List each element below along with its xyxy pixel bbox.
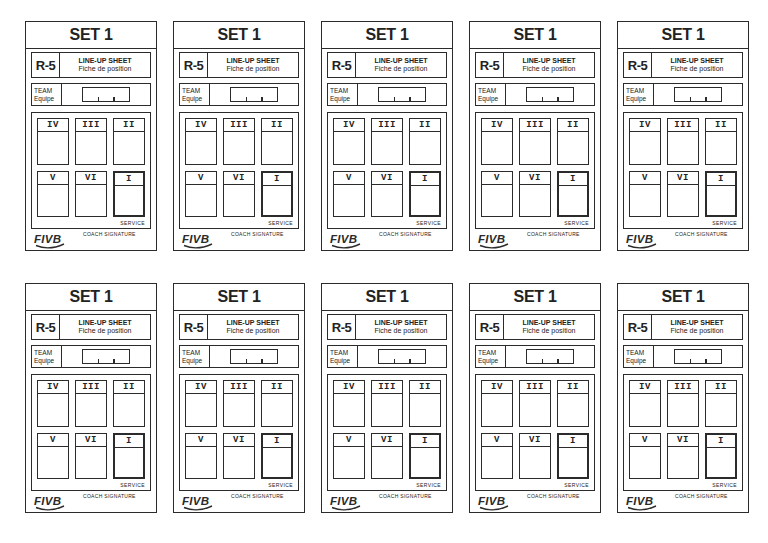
position-label-v: V: [630, 172, 660, 185]
position-label-ii: II: [706, 119, 736, 132]
cards-row-top: SET 1 R-5 LINE-UP SHEET Fiche de positio…: [25, 21, 749, 251]
card-footer: COACH SIGNATURE FIVB: [31, 229, 151, 250]
team-label-en: TEAM: [330, 87, 357, 95]
position-label-iii: III: [76, 119, 106, 132]
position-label-i: I: [559, 435, 587, 448]
fivb-logo-graphic: FIVB: [33, 232, 71, 251]
set-title: SET 1: [470, 284, 600, 311]
cards-row-bottom: SET 1 R-5 LINE-UP SHEET Fiche de positio…: [25, 283, 749, 513]
sheet-title-en: LINE-UP SHEET: [226, 319, 279, 327]
team-label-fr: Equipe: [626, 95, 653, 103]
position-label-iv: IV: [38, 381, 68, 394]
position-box-v: V: [185, 433, 217, 480]
position-box-ii: II: [557, 118, 589, 165]
position-box-iii: III: [223, 380, 255, 427]
lineup-sheet-card: SET 1 R-5 LINE-UP SHEET Fiche de positio…: [321, 21, 453, 251]
team-name-field: [230, 87, 278, 102]
team-row: TEAM Equipe: [327, 345, 447, 368]
position-label-iv: IV: [630, 119, 660, 132]
sheet-title-fr: Fiche de position: [671, 65, 724, 73]
position-field-iii: [76, 132, 106, 164]
position-field-iii: [668, 132, 698, 164]
lineup-sheet-card: SET 1 R-5 LINE-UP SHEET Fiche de positio…: [173, 283, 305, 513]
team-field-cell: [506, 84, 594, 105]
coach-signature-label: COACH SIGNATURE: [83, 231, 136, 237]
fivb-logo: FIVB: [625, 232, 663, 255]
sheet-title-en: LINE-UP SHEET: [374, 57, 427, 65]
team-field-cell: [210, 84, 298, 105]
card-footer: COACH SIGNATURE FIVB: [179, 491, 299, 512]
team-field-tick: [246, 97, 247, 101]
team-label-en: TEAM: [182, 87, 209, 95]
team-label-en: TEAM: [182, 349, 209, 357]
team-label-en: TEAM: [34, 87, 61, 95]
position-box-iv: IV: [481, 118, 513, 165]
service-label: SERVICE: [416, 220, 441, 226]
team-label-fr: Equipe: [330, 95, 357, 103]
sheet-title-fr: Fiche de position: [375, 65, 428, 73]
team-label-fr: Equipe: [34, 357, 61, 365]
position-field-v: [186, 185, 216, 217]
service-label: SERVICE: [120, 220, 145, 226]
team-field-cell: [62, 346, 150, 367]
position-field-v: [38, 185, 68, 217]
position-label-iv: IV: [482, 381, 512, 394]
position-box-v: V: [185, 171, 217, 218]
position-box-iii: III: [223, 118, 255, 165]
team-field-cell: [506, 346, 594, 367]
team-label-fr: Equipe: [478, 95, 505, 103]
position-label-iii: III: [668, 381, 698, 394]
form-code: R-5: [624, 315, 652, 339]
sheet-title: LINE-UP SHEET Fiche de position: [652, 315, 742, 339]
card-footer: COACH SIGNATURE FIVB: [327, 491, 447, 512]
team-label: TEAM Equipe: [32, 346, 62, 367]
position-label-iii: III: [224, 119, 254, 132]
position-label-vi: VI: [224, 434, 254, 447]
team-field-tick: [557, 97, 558, 101]
form-code: R-5: [180, 315, 208, 339]
position-box-iv: IV: [37, 118, 69, 165]
team-label-fr: Equipe: [330, 357, 357, 365]
team-label-en: TEAM: [34, 349, 61, 357]
position-grid: IV III II V VI: [31, 374, 151, 491]
position-label-v: V: [38, 434, 68, 447]
position-field-iv: [334, 132, 364, 164]
position-label-ii: II: [114, 119, 144, 132]
position-box-iv: IV: [185, 380, 217, 427]
position-label-i: I: [411, 173, 439, 186]
position-label-v: V: [186, 434, 216, 447]
team-name-field: [82, 87, 130, 102]
position-field-v: [482, 185, 512, 217]
position-label-vi: VI: [224, 172, 254, 185]
position-field-vi: [520, 185, 550, 217]
team-label-fr: Equipe: [182, 357, 209, 365]
position-grid: IV III II V VI: [31, 112, 151, 229]
position-grid: IV III II V VI: [179, 112, 299, 229]
position-box-vi: VI: [667, 433, 699, 480]
card-footer: COACH SIGNATURE FIVB: [31, 491, 151, 512]
team-row: TEAM Equipe: [31, 83, 151, 106]
position-field-vi: [372, 185, 402, 217]
position-field-i: [263, 448, 291, 478]
team-row: TEAM Equipe: [31, 345, 151, 368]
position-field-iv: [186, 394, 216, 426]
position-box-ii: II: [409, 118, 441, 165]
position-box-vi: VI: [75, 171, 107, 218]
form-header-row: R-5 LINE-UP SHEET Fiche de position: [179, 314, 299, 340]
team-name-field: [378, 87, 426, 102]
position-label-ii: II: [262, 381, 292, 394]
fivb-logo-text: FIVB: [182, 233, 209, 245]
position-field-ii: [558, 132, 588, 164]
fivb-logo-graphic: FIVB: [477, 494, 515, 513]
lineup-sheet-card: SET 1 R-5 LINE-UP SHEET Fiche de positio…: [321, 283, 453, 513]
sheet-title: LINE-UP SHEET Fiche de position: [356, 53, 446, 77]
service-label: SERVICE: [120, 482, 145, 488]
team-field-tick: [394, 359, 395, 363]
position-label-iv: IV: [186, 381, 216, 394]
team-label-en: TEAM: [478, 349, 505, 357]
position-box-iii: III: [371, 380, 403, 427]
position-grid: IV III II V VI: [623, 374, 743, 491]
card-footer: COACH SIGNATURE FIVB: [475, 229, 595, 250]
position-box-i-service: I: [705, 433, 737, 480]
position-box-iv: IV: [629, 380, 661, 427]
sheet-title-fr: Fiche de position: [79, 327, 132, 335]
position-box-i-service: I: [705, 171, 737, 218]
coach-signature-label: COACH SIGNATURE: [379, 493, 432, 499]
team-field-cell: [62, 84, 150, 105]
sheet-title-fr: Fiche de position: [79, 65, 132, 73]
team-name-field: [230, 349, 278, 364]
fivb-logo: FIVB: [329, 232, 367, 255]
position-label-vi: VI: [668, 172, 698, 185]
position-label-vi: VI: [76, 434, 106, 447]
team-label-en: TEAM: [626, 349, 653, 357]
coach-signature-label: COACH SIGNATURE: [675, 231, 728, 237]
position-label-v: V: [630, 434, 660, 447]
position-field-i: [115, 448, 143, 478]
team-name-field: [674, 87, 722, 102]
position-field-ii: [410, 132, 440, 164]
position-label-ii: II: [114, 381, 144, 394]
team-label-en: TEAM: [626, 87, 653, 95]
position-box-iii: III: [75, 118, 107, 165]
team-field-tick: [98, 359, 99, 363]
position-box-ii: II: [261, 380, 293, 427]
position-label-vi: VI: [668, 434, 698, 447]
fivb-logo-text: FIVB: [478, 495, 505, 507]
position-box-i-service: I: [261, 171, 293, 218]
position-grid: IV III II V VI: [623, 112, 743, 229]
position-field-ii: [262, 394, 292, 426]
sheet-title: LINE-UP SHEET Fiche de position: [356, 315, 446, 339]
position-grid: IV III II V VI: [327, 112, 447, 229]
card-body: R-5 LINE-UP SHEET Fiche de position TEAM…: [470, 49, 600, 250]
position-field-i: [411, 186, 439, 216]
lineup-sheet-card: SET 1 R-5 LINE-UP SHEET Fiche de positio…: [25, 21, 157, 251]
set-title: SET 1: [174, 22, 304, 49]
fivb-logo-graphic: FIVB: [181, 494, 219, 513]
position-field-vi: [224, 447, 254, 479]
position-box-vi: VI: [223, 171, 255, 218]
position-label-ii: II: [558, 119, 588, 132]
position-label-i: I: [559, 173, 587, 186]
position-box-v: V: [481, 433, 513, 480]
position-field-i: [707, 186, 735, 216]
position-field-iii: [520, 132, 550, 164]
team-field-tick: [113, 359, 114, 363]
sheet-title-fr: Fiche de position: [523, 65, 576, 73]
team-field-tick: [690, 359, 691, 363]
position-label-vi: VI: [372, 172, 402, 185]
position-box-vi: VI: [75, 433, 107, 480]
position-field-ii: [558, 394, 588, 426]
fivb-logo: FIVB: [477, 232, 515, 255]
card-footer: COACH SIGNATURE FIVB: [475, 491, 595, 512]
form-code: R-5: [476, 53, 504, 77]
team-row: TEAM Equipe: [179, 83, 299, 106]
card-footer: COACH SIGNATURE FIVB: [623, 491, 743, 512]
fivb-logo-text: FIVB: [330, 233, 357, 245]
position-field-v: [334, 185, 364, 217]
position-field-iii: [372, 394, 402, 426]
position-box-iii: III: [519, 118, 551, 165]
fivb-logo-graphic: FIVB: [329, 232, 367, 251]
form-header-row: R-5 LINE-UP SHEET Fiche de position: [31, 314, 151, 340]
service-label: SERVICE: [712, 482, 737, 488]
position-field-v: [630, 185, 660, 217]
lineup-sheet-card: SET 1 R-5 LINE-UP SHEET Fiche de positio…: [469, 21, 601, 251]
position-box-v: V: [37, 433, 69, 480]
position-label-iii: III: [372, 381, 402, 394]
card-body: R-5 LINE-UP SHEET Fiche de position TEAM…: [322, 49, 452, 250]
position-label-i: I: [115, 173, 143, 186]
position-label-iv: IV: [334, 119, 364, 132]
team-label-en: TEAM: [478, 87, 505, 95]
position-label-v: V: [334, 172, 364, 185]
position-label-i: I: [707, 435, 735, 448]
position-label-iv: IV: [38, 119, 68, 132]
position-box-v: V: [481, 171, 513, 218]
position-box-i-service: I: [113, 171, 145, 218]
fivb-logo-graphic: FIVB: [181, 232, 219, 251]
position-box-i-service: I: [409, 171, 441, 218]
fivb-logo-text: FIVB: [330, 495, 357, 507]
team-row: TEAM Equipe: [179, 345, 299, 368]
position-field-vi: [224, 185, 254, 217]
position-box-i-service: I: [557, 171, 589, 218]
form-code: R-5: [624, 53, 652, 77]
position-box-i-service: I: [557, 433, 589, 480]
fivb-logo: FIVB: [181, 232, 219, 255]
team-label: TEAM Equipe: [624, 346, 654, 367]
position-field-vi: [520, 447, 550, 479]
position-field-i: [411, 448, 439, 478]
set-title: SET 1: [26, 284, 156, 311]
position-field-iv: [482, 132, 512, 164]
team-label-fr: Equipe: [626, 357, 653, 365]
form-code: R-5: [476, 315, 504, 339]
position-grid: IV III II V VI: [327, 374, 447, 491]
form-header-row: R-5 LINE-UP SHEET Fiche de position: [475, 314, 595, 340]
position-box-v: V: [629, 171, 661, 218]
service-label: SERVICE: [268, 482, 293, 488]
position-label-iv: IV: [630, 381, 660, 394]
position-label-ii: II: [410, 119, 440, 132]
team-label-fr: Equipe: [182, 95, 209, 103]
position-field-iv: [38, 394, 68, 426]
position-field-ii: [706, 394, 736, 426]
position-label-ii: II: [706, 381, 736, 394]
position-grid: IV III II V VI: [475, 374, 595, 491]
lineup-sheet-card: SET 1 R-5 LINE-UP SHEET Fiche de positio…: [469, 283, 601, 513]
lineup-sheet-card: SET 1 R-5 LINE-UP SHEET Fiche de positio…: [173, 21, 305, 251]
position-field-iii: [76, 394, 106, 426]
position-field-i: [707, 448, 735, 478]
team-field-tick: [705, 97, 706, 101]
fivb-logo-text: FIVB: [626, 233, 653, 245]
position-box-v: V: [629, 433, 661, 480]
sheet-title: LINE-UP SHEET Fiche de position: [60, 315, 150, 339]
sheet-title: LINE-UP SHEET Fiche de position: [652, 53, 742, 77]
position-box-iii: III: [75, 380, 107, 427]
lineup-sheet-card: SET 1 R-5 LINE-UP SHEET Fiche de positio…: [617, 21, 749, 251]
position-label-iii: III: [520, 381, 550, 394]
team-field-tick: [98, 97, 99, 101]
team-row: TEAM Equipe: [475, 83, 595, 106]
position-label-v: V: [38, 172, 68, 185]
form-code: R-5: [328, 315, 356, 339]
position-grid: IV III II V VI: [475, 112, 595, 229]
team-field-cell: [358, 346, 446, 367]
team-row: TEAM Equipe: [623, 83, 743, 106]
fivb-logo-text: FIVB: [34, 495, 61, 507]
position-label-v: V: [186, 172, 216, 185]
team-field-tick: [261, 359, 262, 363]
position-label-iii: III: [76, 381, 106, 394]
position-label-i: I: [411, 435, 439, 448]
position-box-ii: II: [113, 380, 145, 427]
position-field-ii: [114, 132, 144, 164]
position-label-vi: VI: [520, 172, 550, 185]
position-label-i: I: [263, 173, 291, 186]
lineup-sheet-card: SET 1 R-5 LINE-UP SHEET Fiche de positio…: [617, 283, 749, 513]
position-box-v: V: [333, 171, 365, 218]
sheet-title: LINE-UP SHEET Fiche de position: [504, 315, 594, 339]
sheet-title-fr: Fiche de position: [375, 327, 428, 335]
team-name-field: [674, 349, 722, 364]
team-label-en: TEAM: [330, 349, 357, 357]
position-label-iii: III: [372, 119, 402, 132]
position-field-iv: [630, 132, 660, 164]
form-header-row: R-5 LINE-UP SHEET Fiche de position: [179, 52, 299, 78]
sheet-title: LINE-UP SHEET Fiche de position: [504, 53, 594, 77]
position-field-i: [559, 186, 587, 216]
position-field-v: [334, 447, 364, 479]
position-label-vi: VI: [372, 434, 402, 447]
team-field-cell: [358, 84, 446, 105]
sheet-title: LINE-UP SHEET Fiche de position: [208, 53, 298, 77]
position-grid: IV III II V VI: [179, 374, 299, 491]
position-box-iv: IV: [629, 118, 661, 165]
form-code: R-5: [32, 53, 60, 77]
sheet-title: LINE-UP SHEET Fiche de position: [208, 315, 298, 339]
position-field-v: [630, 447, 660, 479]
service-label: SERVICE: [564, 482, 589, 488]
position-box-vi: VI: [519, 433, 551, 480]
team-field-tick: [409, 97, 410, 101]
form-header-row: R-5 LINE-UP SHEET Fiche de position: [475, 52, 595, 78]
form-header-row: R-5 LINE-UP SHEET Fiche de position: [623, 52, 743, 78]
card-body: R-5 LINE-UP SHEET Fiche de position TEAM…: [174, 311, 304, 512]
position-field-ii: [410, 394, 440, 426]
set-title: SET 1: [322, 22, 452, 49]
position-field-iii: [224, 132, 254, 164]
position-box-ii: II: [705, 118, 737, 165]
position-field-iv: [38, 132, 68, 164]
position-box-iv: IV: [37, 380, 69, 427]
set-title: SET 1: [470, 22, 600, 49]
form-header-row: R-5 LINE-UP SHEET Fiche de position: [31, 52, 151, 78]
coach-signature-label: COACH SIGNATURE: [527, 231, 580, 237]
coach-signature-label: COACH SIGNATURE: [379, 231, 432, 237]
position-label-v: V: [482, 434, 512, 447]
sheet-title-en: LINE-UP SHEET: [522, 319, 575, 327]
card-footer: COACH SIGNATURE FIVB: [179, 229, 299, 250]
card-body: R-5 LINE-UP SHEET Fiche de position TEAM…: [618, 311, 748, 512]
sheet-title-en: LINE-UP SHEET: [374, 319, 427, 327]
set-title: SET 1: [174, 284, 304, 311]
position-box-iv: IV: [333, 380, 365, 427]
form-code: R-5: [328, 53, 356, 77]
position-box-v: V: [333, 433, 365, 480]
position-label-iv: IV: [334, 381, 364, 394]
position-label-iii: III: [520, 119, 550, 132]
fivb-logo: FIVB: [477, 494, 515, 517]
sheet-title-en: LINE-UP SHEET: [522, 57, 575, 65]
coach-signature-label: COACH SIGNATURE: [675, 493, 728, 499]
sheet-title-fr: Fiche de position: [523, 327, 576, 335]
position-field-i: [263, 186, 291, 216]
position-box-vi: VI: [667, 171, 699, 218]
position-field-ii: [706, 132, 736, 164]
position-label-vi: VI: [76, 172, 106, 185]
position-field-iii: [520, 394, 550, 426]
coach-signature-label: COACH SIGNATURE: [231, 493, 284, 499]
set-title: SET 1: [618, 284, 748, 311]
team-label: TEAM Equipe: [180, 84, 210, 105]
card-body: R-5 LINE-UP SHEET Fiche de position TEAM…: [618, 49, 748, 250]
service-label: SERVICE: [564, 220, 589, 226]
team-field-cell: [654, 346, 742, 367]
position-field-i: [115, 186, 143, 216]
position-label-vi: VI: [520, 434, 550, 447]
team-field-tick: [394, 97, 395, 101]
team-field-tick: [246, 359, 247, 363]
team-row: TEAM Equipe: [327, 83, 447, 106]
position-label-ii: II: [262, 119, 292, 132]
position-label-iii: III: [668, 119, 698, 132]
position-field-iv: [630, 394, 660, 426]
position-box-iii: III: [519, 380, 551, 427]
fivb-logo-graphic: FIVB: [329, 494, 367, 513]
team-label-fr: Equipe: [478, 357, 505, 365]
fivb-logo-text: FIVB: [626, 495, 653, 507]
position-box-ii: II: [705, 380, 737, 427]
